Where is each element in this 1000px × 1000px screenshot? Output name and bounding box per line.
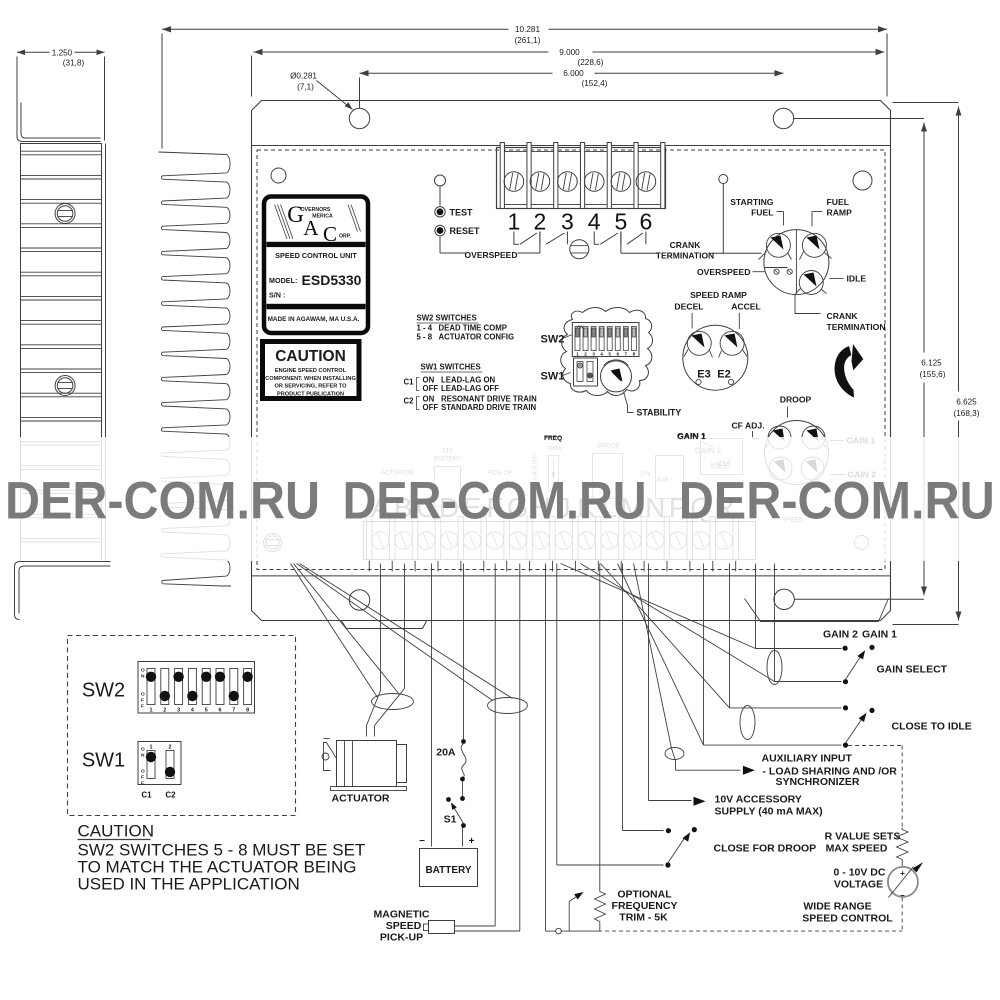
svg-text:1: 1 (508, 208, 521, 234)
svg-text:9.000: 9.000 (559, 48, 580, 57)
svg-text:STANDARD DRIVE TRAIN: STANDARD DRIVE TRAIN (441, 403, 537, 412)
svg-text:CF ADJ.: CF ADJ. (731, 421, 764, 431)
svg-text:6: 6 (616, 352, 619, 357)
svg-text:(155,6): (155,6) (920, 370, 946, 379)
svg-text:6.000: 6.000 (563, 69, 584, 78)
svg-text:C: C (323, 222, 337, 246)
svg-text:ACCEL: ACCEL (731, 302, 761, 312)
svg-text:F: F (141, 698, 144, 704)
svg-text:SPEED CONTROL: SPEED CONTROL (802, 913, 893, 925)
svg-text:6: 6 (219, 708, 222, 714)
svg-text:CLOSE TO IDLE: CLOSE TO IDLE (892, 721, 972, 733)
svg-text:RAMP: RAMP (827, 208, 853, 218)
svg-text:3: 3 (561, 208, 574, 234)
svg-text:BATTERY: BATTERY (425, 865, 471, 876)
svg-text:+: + (900, 868, 905, 878)
svg-text:5: 5 (205, 708, 208, 714)
svg-text:4: 4 (191, 708, 194, 714)
svg-text:TRIM - 5K: TRIM - 5K (619, 912, 668, 924)
svg-text:AUXILIARY INPUT: AUXILIARY INPUT (762, 753, 853, 765)
svg-text:LEAD-LAG OFF: LEAD-LAG OFF (441, 384, 499, 393)
svg-text:CAUTION: CAUTION (78, 822, 155, 841)
svg-text:ENGINE SPEED CONTROL: ENGINE SPEED CONTROL (275, 368, 347, 374)
svg-text:SW2: SW2 (541, 334, 565, 346)
svg-text:SPEED: SPEED (386, 920, 422, 932)
svg-text:ACTUATOR: ACTUATOR (332, 793, 390, 805)
svg-text:(31,8): (31,8) (63, 59, 85, 68)
svg-text:SW2 SWITCHES: SW2 SWITCHES (417, 314, 477, 323)
svg-text:7: 7 (232, 708, 235, 714)
svg-text:1: 1 (150, 745, 153, 751)
svg-text:2: 2 (584, 352, 587, 357)
svg-text:6.125: 6.125 (921, 359, 942, 368)
svg-text:STABILITY: STABILITY (637, 408, 682, 418)
svg-text:GAIN 1: GAIN 1 (677, 431, 706, 441)
svg-text:8: 8 (633, 352, 636, 357)
svg-text:MADE IN AGAWAM, MA U.S.A.: MADE IN AGAWAM, MA U.S.A. (268, 316, 360, 323)
svg-text:C2: C2 (165, 791, 176, 800)
svg-text:F: F (141, 781, 144, 787)
svg-text:O: O (141, 769, 145, 775)
svg-text:(152,4): (152,4) (582, 79, 608, 88)
svg-text:OR SERVICING, REFER TO: OR SERVICING, REFER TO (275, 384, 348, 390)
svg-text:PRODUCT PUBLICATION: PRODUCT PUBLICATION (277, 391, 344, 397)
svg-text:O: O (141, 747, 145, 753)
svg-text:5: 5 (608, 352, 611, 357)
svg-text:(261,1): (261,1) (515, 36, 541, 45)
svg-text:1: 1 (150, 708, 153, 714)
svg-text:DER-COM.RU: DER-COM.RU (679, 472, 995, 531)
svg-text:DECEL: DECEL (674, 302, 703, 312)
svg-text:OFF: OFF (423, 403, 439, 412)
svg-text:7: 7 (625, 352, 628, 357)
svg-text:MAX SPEED: MAX SPEED (826, 843, 888, 855)
svg-text:OVERSPEED: OVERSPEED (465, 250, 518, 260)
svg-text:6: 6 (640, 208, 653, 234)
svg-text:CRANK: CRANK (670, 240, 702, 250)
svg-text:O: O (141, 668, 145, 674)
svg-text:(228,6): (228,6) (578, 58, 604, 67)
svg-text:E3: E3 (697, 369, 710, 381)
svg-text:USED IN THE APPLICATION: USED IN THE APPLICATION (78, 875, 300, 894)
svg-text:10.281: 10.281 (515, 25, 540, 34)
svg-text:DER-COM.RU: DER-COM.RU (343, 472, 647, 531)
svg-text:R VALUE SETS: R VALUE SETS (825, 831, 901, 843)
svg-text:SW2: SW2 (82, 680, 125, 702)
svg-text:C1: C1 (404, 378, 415, 387)
svg-text:C1: C1 (141, 791, 152, 800)
svg-text:FUEL: FUEL (751, 208, 773, 218)
svg-text:GAIN SELECT: GAIN SELECT (877, 664, 948, 676)
svg-text:CRANK: CRANK (827, 311, 859, 321)
svg-text:TERMINATION: TERMINATION (656, 250, 714, 260)
svg-text:SPEED CONTROL UNIT: SPEED CONTROL UNIT (275, 251, 357, 260)
svg-text:C2: C2 (404, 397, 415, 406)
svg-text:5: 5 (615, 208, 628, 234)
svg-text:GAIN 2: GAIN 2 (823, 629, 858, 641)
svg-text:3: 3 (177, 708, 180, 714)
svg-text:−: − (419, 836, 425, 847)
svg-text:GAIN 1: GAIN 1 (862, 629, 897, 641)
svg-text:S/N :: S/N : (269, 291, 285, 300)
svg-text:4: 4 (600, 352, 603, 357)
svg-text:DER-COM.RU: DER-COM.RU (5, 472, 320, 531)
svg-text:FREQ: FREQ (544, 435, 562, 442)
svg-text:20A: 20A (436, 747, 456, 759)
svg-text:1.250: 1.250 (52, 48, 73, 57)
svg-text:2: 2 (163, 708, 166, 714)
svg-text:F: F (141, 775, 144, 781)
svg-text:8: 8 (246, 708, 249, 714)
svg-text:1 - 4: 1 - 4 (417, 324, 433, 333)
svg-text:2: 2 (534, 208, 547, 234)
svg-text:1: 1 (576, 352, 579, 357)
svg-text:SPEED RAMP: SPEED RAMP (690, 290, 747, 300)
svg-text:STARTING: STARTING (730, 197, 774, 207)
svg-text:FREQUENCY: FREQUENCY (612, 900, 678, 912)
svg-text:−: − (900, 891, 905, 901)
svg-text:G: G (287, 202, 304, 227)
svg-text:FUEL: FUEL (827, 197, 849, 207)
svg-text:S1: S1 (444, 814, 457, 826)
svg-text:DROOP: DROOP (780, 395, 812, 405)
svg-text:5 - 8: 5 - 8 (417, 333, 433, 342)
svg-text:COMPONENT. WHEN INSTALLING: COMPONENT. WHEN INSTALLING (265, 376, 356, 382)
svg-text:CAUTION: CAUTION (275, 348, 346, 365)
svg-text:+: + (469, 836, 475, 847)
svg-text:TERMINATION: TERMINATION (827, 322, 886, 332)
svg-text:O: O (141, 692, 145, 698)
svg-text:DEAD TIME COMP: DEAD TIME COMP (439, 324, 507, 333)
svg-text:(7,1): (7,1) (297, 83, 314, 92)
svg-text:TEST: TEST (450, 208, 474, 218)
svg-text:CLOSE FOR DROOP: CLOSE FOR DROOP (714, 843, 817, 855)
svg-text:2: 2 (169, 745, 172, 751)
svg-text:E2: E2 (717, 369, 730, 381)
svg-text:ESD5330: ESD5330 (302, 272, 362, 288)
svg-text:SUPPLY (40 mA MAX): SUPPLY (40 mA MAX) (715, 806, 823, 818)
svg-text:A: A (303, 216, 319, 240)
svg-text:OPTIONAL: OPTIONAL (617, 889, 672, 901)
svg-text:3: 3 (592, 352, 595, 357)
svg-text:ORP.: ORP. (339, 234, 352, 240)
svg-text:SW1: SW1 (82, 750, 125, 772)
svg-text:N: N (141, 753, 145, 759)
svg-text:10V ACCESSORY: 10V ACCESSORY (715, 794, 802, 806)
svg-text:Ø0.281: Ø0.281 (290, 72, 317, 81)
svg-text:SW1 SWITCHES: SW1 SWITCHES (421, 363, 481, 372)
svg-text:MERICA: MERICA (312, 214, 333, 220)
svg-text:F: F (141, 704, 144, 710)
svg-text:6.625: 6.625 (956, 398, 977, 407)
svg-text:SW1: SW1 (541, 371, 565, 383)
svg-text:N: N (141, 674, 145, 680)
svg-text:OVERSPEED: OVERSPEED (697, 267, 751, 277)
svg-text:4: 4 (588, 208, 601, 234)
svg-text:MODEL:: MODEL: (269, 276, 297, 285)
svg-text:OFF: OFF (423, 384, 439, 393)
svg-text:0 - 10V DC: 0 - 10V DC (834, 867, 886, 879)
svg-text:RESET: RESET (450, 226, 481, 236)
svg-text:SYNCHRONIZER: SYNCHRONIZER (776, 776, 860, 788)
svg-text:VOLTAGE: VOLTAGE (834, 879, 883, 891)
svg-text:IDLE: IDLE (847, 274, 867, 284)
svg-text:MAGNETIC: MAGNETIC (374, 909, 430, 921)
svg-text:OVERNORS: OVERNORS (301, 207, 331, 213)
svg-text:(168,3): (168,3) (954, 409, 980, 418)
svg-text:WIDE RANGE: WIDE RANGE (803, 901, 871, 913)
svg-text:ACTUATOR CONFIG: ACTUATOR CONFIG (439, 333, 515, 342)
svg-text:PICK-UP: PICK-UP (380, 932, 423, 944)
